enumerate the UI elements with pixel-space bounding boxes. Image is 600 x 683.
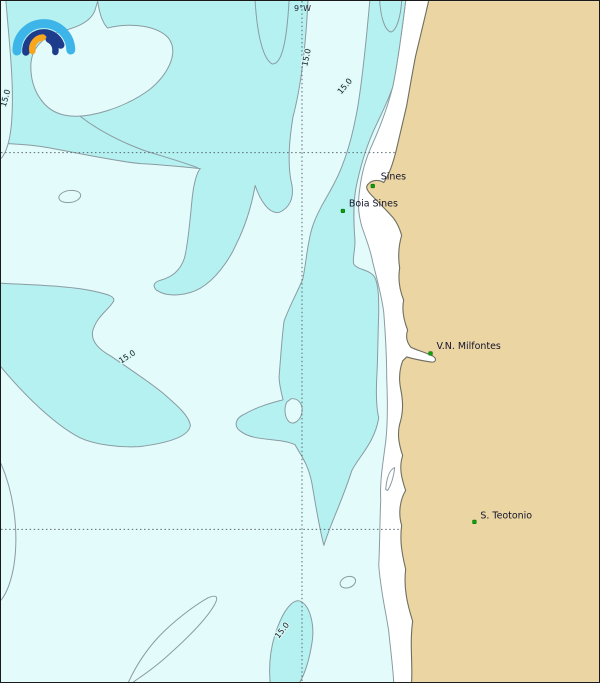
place-label-sines: Sines: [381, 172, 406, 183]
place-marker-sines: [371, 184, 375, 188]
place-marker-vn-milfontes: [429, 352, 433, 356]
pale-hole-coastal-band: [285, 399, 302, 423]
map-canvas: 9°W 15.0 15.0 15.0 15.0 15.0 Sines Boia …: [1, 1, 599, 682]
coastal-contour-map: 9°W 15.0 15.0 15.0 15.0 15.0 Sines Boia …: [0, 0, 600, 683]
sea-layer: [1, 1, 406, 682]
place-label-boia-sines: Boia Sines: [349, 198, 398, 209]
place-label-vn-milfontes: V.N. Milfontes: [437, 341, 501, 352]
meridian-label: 9°W: [294, 4, 311, 13]
place-marker-boia-sines: [341, 209, 345, 213]
place-marker-s-teotonio: [473, 520, 477, 524]
place-label-s-teotonio: S. Teotonio: [480, 510, 532, 521]
